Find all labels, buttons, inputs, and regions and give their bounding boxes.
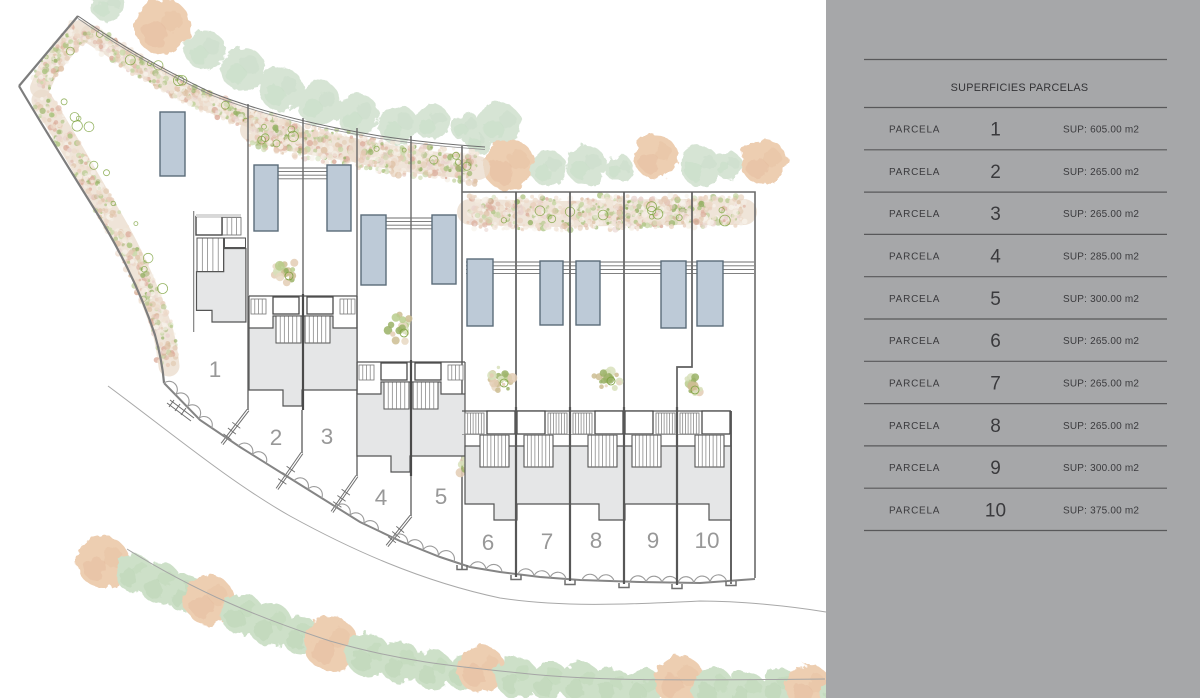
svg-text:SUP: 265.00 m2: SUP: 265.00 m2 bbox=[1063, 378, 1139, 389]
svg-text:7: 7 bbox=[990, 373, 1001, 394]
svg-text:SUP: 300.00 m2: SUP: 300.00 m2 bbox=[1063, 463, 1139, 474]
svg-text:5: 5 bbox=[435, 484, 448, 509]
svg-text:SUP: 265.00 m2: SUP: 265.00 m2 bbox=[1063, 167, 1139, 178]
svg-text:9: 9 bbox=[647, 528, 660, 553]
svg-text:7: 7 bbox=[541, 529, 554, 554]
svg-text:4: 4 bbox=[375, 485, 388, 510]
svg-text:PARCELA: PARCELA bbox=[889, 505, 940, 516]
svg-text:SUP: 375.00 m2: SUP: 375.00 m2 bbox=[1063, 505, 1139, 516]
svg-text:6: 6 bbox=[482, 530, 495, 555]
svg-text:3: 3 bbox=[990, 204, 1001, 225]
svg-text:SUP: 265.00 m2: SUP: 265.00 m2 bbox=[1063, 209, 1139, 220]
svg-text:PARCELA: PARCELA bbox=[889, 252, 940, 263]
svg-text:6: 6 bbox=[990, 331, 1001, 352]
svg-text:SUP: 285.00 m2: SUP: 285.00 m2 bbox=[1063, 252, 1139, 263]
svg-text:SUP: 300.00 m2: SUP: 300.00 m2 bbox=[1063, 294, 1139, 305]
svg-text:PARCELA: PARCELA bbox=[889, 294, 940, 305]
svg-text:PARCELA: PARCELA bbox=[889, 336, 940, 347]
svg-text:SUP: 605.00 m2: SUP: 605.00 m2 bbox=[1063, 125, 1139, 136]
svg-text:PARCELA: PARCELA bbox=[889, 125, 940, 136]
svg-text:PARCELA: PARCELA bbox=[889, 378, 940, 389]
svg-text:PARCELA: PARCELA bbox=[889, 421, 940, 432]
svg-text:2: 2 bbox=[270, 425, 283, 450]
svg-text:3: 3 bbox=[321, 424, 334, 449]
svg-text:8: 8 bbox=[590, 528, 603, 553]
svg-text:9: 9 bbox=[990, 458, 1001, 479]
svg-text:SUPERFICIES PARCELAS: SUPERFICIES PARCELAS bbox=[951, 82, 1089, 94]
svg-text:8: 8 bbox=[990, 416, 1001, 437]
svg-text:1: 1 bbox=[990, 120, 1001, 141]
svg-text:SUP: 265.00 m2: SUP: 265.00 m2 bbox=[1063, 421, 1139, 432]
svg-text:SUP: 265.00 m2: SUP: 265.00 m2 bbox=[1063, 336, 1139, 347]
svg-text:10: 10 bbox=[694, 528, 719, 553]
svg-text:PARCELA: PARCELA bbox=[889, 209, 940, 220]
svg-text:PARCELA: PARCELA bbox=[889, 167, 940, 178]
svg-text:1: 1 bbox=[209, 357, 222, 382]
svg-text:4: 4 bbox=[990, 247, 1001, 268]
svg-text:10: 10 bbox=[985, 500, 1006, 521]
svg-text:PARCELA: PARCELA bbox=[889, 463, 940, 474]
svg-text:5: 5 bbox=[990, 289, 1001, 310]
svg-text:2: 2 bbox=[990, 162, 1001, 183]
